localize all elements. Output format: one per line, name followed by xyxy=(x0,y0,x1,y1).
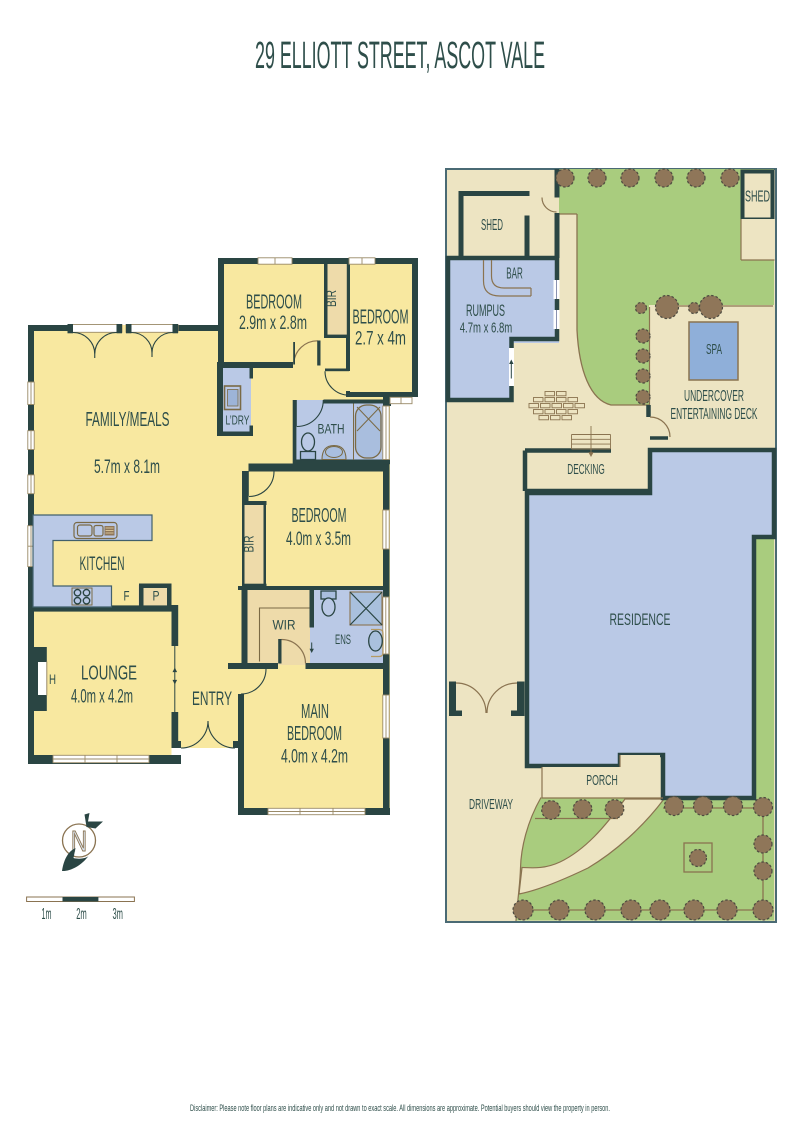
svg-text:RUMPUS: RUMPUS xyxy=(466,301,505,320)
svg-text:BEDROOM: BEDROOM xyxy=(292,505,347,527)
svg-text:UNDERCOVER: UNDERCOVER xyxy=(684,388,744,405)
svg-text:BEDROOM: BEDROOM xyxy=(353,307,409,329)
svg-text:P: P xyxy=(153,589,160,604)
svg-text:4.7m x 6.8m: 4.7m x 6.8m xyxy=(460,320,513,337)
svg-text:F: F xyxy=(124,589,130,604)
svg-text:SHED: SHED xyxy=(481,217,503,234)
svg-text:ENTERTAINING DECK: ENTERTAINING DECK xyxy=(671,406,758,423)
svg-text:MAIN: MAIN xyxy=(301,701,329,723)
svg-text:BIR: BIR xyxy=(324,290,339,307)
svg-text:BEDROOM: BEDROOM xyxy=(287,723,342,745)
svg-text:WIR: WIR xyxy=(273,617,296,633)
svg-text:DECKING: DECKING xyxy=(567,461,605,478)
svg-text:BEDROOM: BEDROOM xyxy=(246,292,302,314)
svg-text:H: H xyxy=(49,672,56,687)
svg-text:BATH: BATH xyxy=(318,421,345,437)
svg-text:5.7m x 8.1m: 5.7m x 8.1m xyxy=(94,457,160,478)
svg-text:2m: 2m xyxy=(76,906,87,923)
svg-text:1m: 1m xyxy=(42,906,52,923)
svg-text:ENTRY: ENTRY xyxy=(192,689,232,710)
svg-text:4.0m x 4.2m: 4.0m x 4.2m xyxy=(71,687,133,708)
svg-text:FAMILY/MEALS: FAMILY/MEALS xyxy=(86,409,170,431)
svg-text:LOUNGE: LOUNGE xyxy=(81,663,137,685)
svg-text:29 ELLIOTT STREET, ASCOT VALE: 29 ELLIOTT STREET, ASCOT VALE xyxy=(255,35,545,77)
svg-text:RESIDENCE: RESIDENCE xyxy=(610,610,671,629)
svg-text:3m: 3m xyxy=(112,906,123,923)
svg-text:2.9m x 2.8m: 2.9m x 2.8m xyxy=(239,313,307,334)
svg-text:SPA: SPA xyxy=(706,341,722,358)
svg-text:2.7 x 4m: 2.7 x 4m xyxy=(355,329,406,350)
svg-text:DRIVEWAY: DRIVEWAY xyxy=(469,797,513,813)
svg-text:4.0m x 4.2m: 4.0m x 4.2m xyxy=(281,747,348,768)
svg-text:BAR: BAR xyxy=(506,266,523,283)
svg-text:PORCH: PORCH xyxy=(586,773,618,789)
svg-text:SHED: SHED xyxy=(745,189,770,206)
svg-text:4.0m x 3.5m: 4.0m x 3.5m xyxy=(286,529,351,550)
svg-text:L’DRY: L’DRY xyxy=(226,413,250,428)
svg-text:BIR: BIR xyxy=(242,535,257,552)
svg-text:ENS: ENS xyxy=(335,631,351,647)
svg-text:KITCHEN: KITCHEN xyxy=(80,554,125,575)
svg-text:Disclaimer: Please note floor: Disclaimer: Please note floor plans are … xyxy=(190,1103,610,1113)
